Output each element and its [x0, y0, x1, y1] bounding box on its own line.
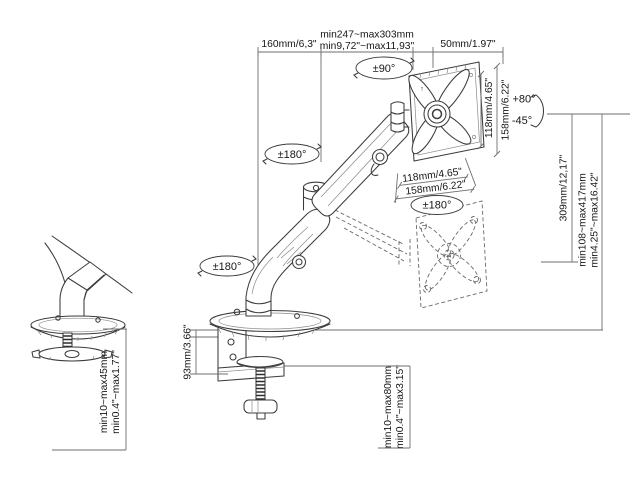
clamp-screw-threads: [256, 371, 265, 399]
head-swivel-label: ±90°: [373, 63, 396, 75]
vesa-plate-drawing: ↑: [404, 62, 484, 161]
vesa-rotation-label: ±180°: [423, 200, 452, 212]
grommet-base-plate: [31, 316, 125, 334]
diagram-page: ↑ 118mm/4.65" 158mm/6.22" 160mm/6,3" min…: [0, 0, 640, 480]
desk-clamp-drawing: [210, 309, 330, 419]
clamp-pad: [237, 357, 283, 368]
arm-drawing: [246, 102, 409, 316]
arm-stub: [60, 262, 106, 320]
extension-range-in-label: min9,72"~max11,93": [320, 41, 415, 52]
dimension-annotations: 118mm/4.65" 158mm/6.22" 160mm/6,3" min24…: [52, 30, 630, 451]
upper-joint-rotation-label: ±180°: [278, 149, 307, 161]
vesa-height-inner-label: 118mm/4.65": [484, 78, 495, 138]
base-joint-rotation-label: ±180°: [213, 261, 242, 273]
tilt-tension-dial: [373, 150, 388, 165]
height-range-in-label: min4.25"~max16.42": [590, 172, 601, 268]
vesa-height-outer-label: 158mm/6.22": [501, 79, 512, 140]
clamp-knob: [244, 400, 277, 413]
clamp-thickness-in-label: min0.4"~max3.15": [395, 365, 406, 449]
clamp-thickness-mm-label: min10~max80mm: [383, 366, 394, 448]
ghost-screw-br: [474, 277, 481, 284]
ghost-vesa-lobe-tr: [443, 216, 479, 259]
ghost-arm-lines: [329, 207, 410, 267]
head-depth-label: 50mm/1.97": [440, 39, 496, 50]
grommet-thickness-in-label: min0.4"~max1.77": [111, 350, 122, 434]
grommet-thickness-mm-label: min10~max45mm: [99, 351, 110, 433]
wrist-joint: [391, 102, 404, 132]
up-marking: ↑: [420, 86, 424, 93]
clamp-knob-tip: [257, 413, 265, 419]
ghost-arm-and-vesa: [329, 201, 487, 308]
height-range-mm-label: min108~max417mm: [578, 173, 589, 267]
tilt-up-label: +80°: [512, 94, 535, 106]
grommet-wing-plate: [39, 347, 105, 361]
ghost-screw-bl: [424, 286, 431, 293]
grommet-mount-drawing: [31, 236, 132, 361]
monitor-arm-dimension-diagram: ↑ 118mm/4.65" 158mm/6.22" 160mm/6,3" min…: [0, 0, 640, 480]
extension-range-mm-label: min247~max303mm: [320, 30, 414, 41]
lift-stroke-label: 309mm/12,17": [559, 154, 570, 221]
tilt-down-label: -45°: [512, 115, 532, 127]
tension-knob: [293, 256, 306, 269]
ghost-vesa-plate-outline: [416, 201, 487, 308]
lower-arm-and-riser: [246, 209, 330, 316]
clamp-height-label: 93mm/3.66": [183, 324, 194, 380]
arm-length-label: 160mm/6,3": [261, 39, 317, 50]
